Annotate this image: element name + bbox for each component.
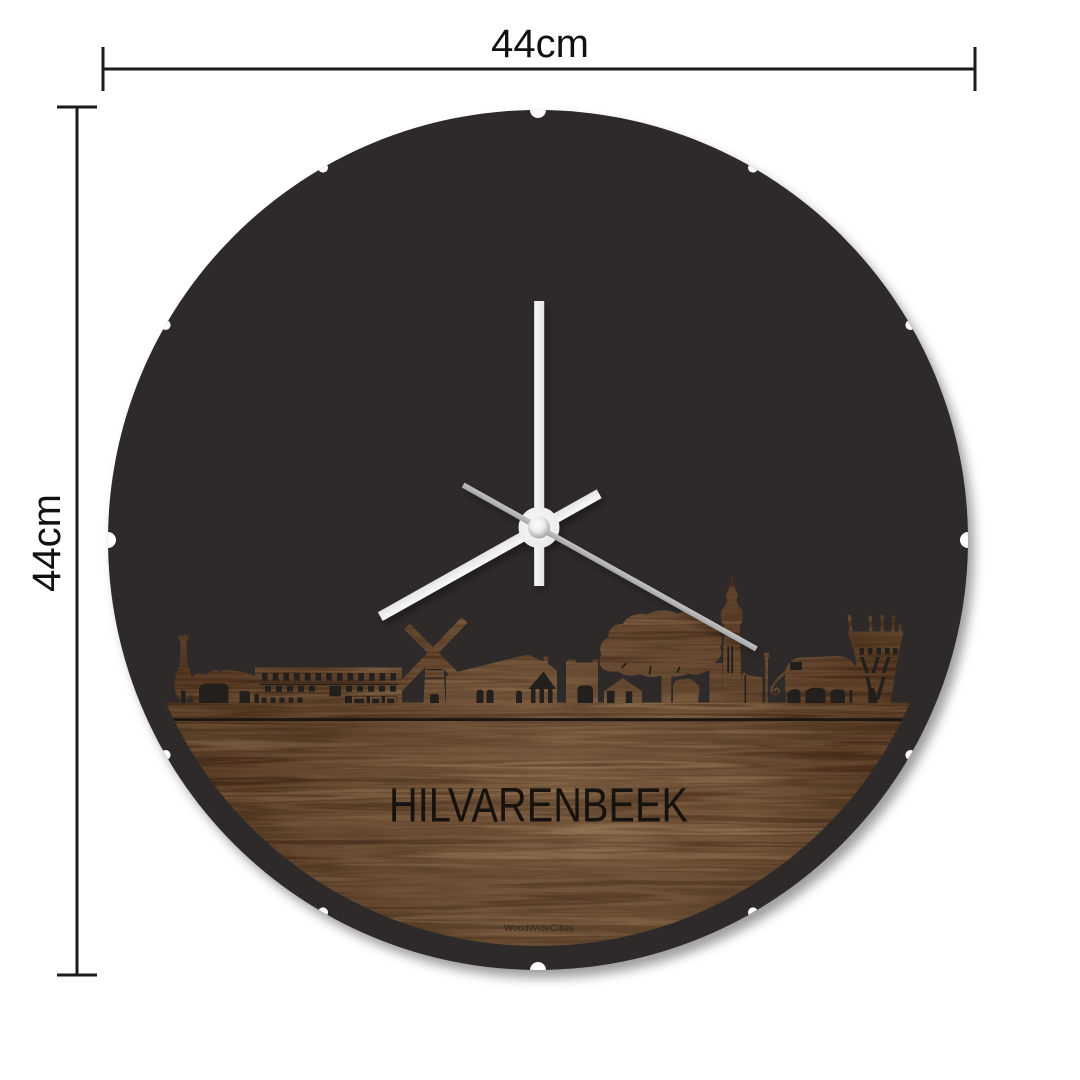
svg-text:44cm: 44cm: [25, 494, 69, 592]
svg-text:44cm: 44cm: [491, 22, 589, 66]
svg-text:WoodWideCities: WoodWideCities: [504, 923, 574, 934]
svg-text:HILVARENBEEK: HILVARENBEEK: [389, 780, 688, 833]
